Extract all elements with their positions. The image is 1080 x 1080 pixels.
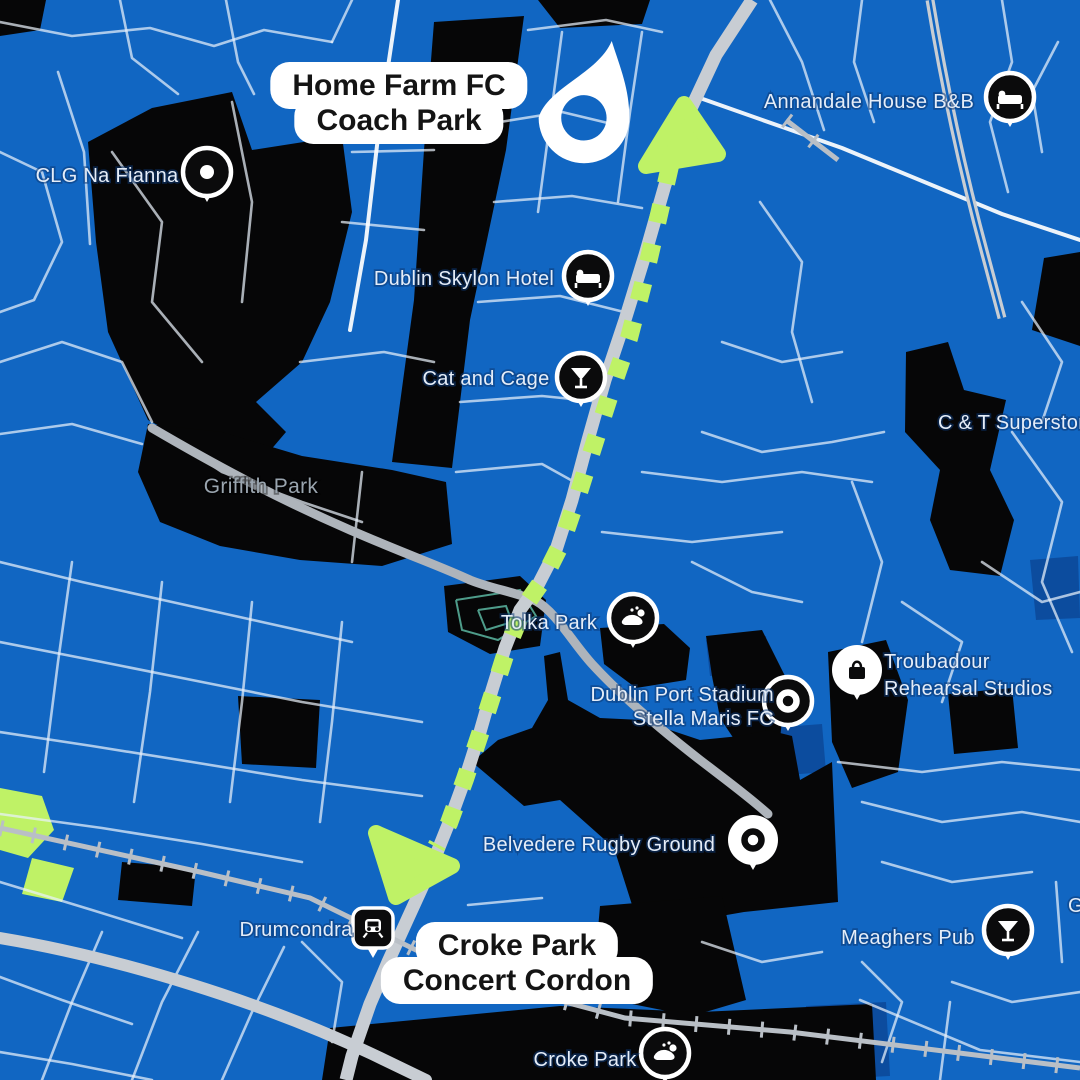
- poi-label-troubadour-rehearsal-studios: Troubadour: [884, 651, 990, 673]
- park-block-area: [238, 696, 320, 768]
- poi-label-c-and-t-superstore: C & T Superstore: [938, 412, 1080, 434]
- poi-label-griffith-park: Griffith Park: [204, 475, 319, 498]
- poi-label-croke-park: Croke Park: [533, 1049, 637, 1071]
- start-annotation-pill: Home Farm FC Coach Park: [270, 62, 527, 144]
- poi-label-clg-na-fianna: CLG Na Fianna: [36, 165, 179, 187]
- start-pill-line2: Coach Park: [294, 97, 503, 144]
- end-annotation-pill: Croke Park Concert Cordon: [381, 922, 653, 1004]
- poi-label2-dublin-port-stadium: Stella Maris FC: [633, 708, 774, 730]
- location-drop-pin[interactable]: [521, 34, 647, 174]
- poi-label-belvedere-rugby-ground: Belvedere Rugby Ground: [483, 834, 715, 856]
- poi-label-dublin-port-stadium: Dublin Port Stadium: [590, 684, 774, 706]
- poi-label-cat-and-cage: Cat and Cage: [422, 368, 549, 390]
- poi-label-clipped-label-g: G: [1068, 895, 1080, 917]
- end-pill-line2: Concert Cordon: [381, 957, 653, 1004]
- poi-label-annandale-house-bb: Annandale House B&B: [764, 91, 974, 113]
- poi-label2-troubadour-rehearsal-studios: Rehearsal Studios: [884, 678, 1053, 700]
- poi-label-meaghers-pub: Meaghers Pub: [841, 927, 975, 949]
- poi-label-tolka-park: Tolka Park: [501, 612, 598, 634]
- map-stage: Annandale House B&BCLG Na FiannaDublin S…: [0, 0, 1080, 1080]
- poi-label-dublin-skylon-hotel: Dublin Skylon Hotel: [374, 268, 554, 290]
- poi-pin-croke-park[interactable]: [641, 1029, 689, 1080]
- drop-pin-shape: [539, 41, 630, 163]
- poi-label-drumcondra-station: Drumcondra: [239, 919, 353, 941]
